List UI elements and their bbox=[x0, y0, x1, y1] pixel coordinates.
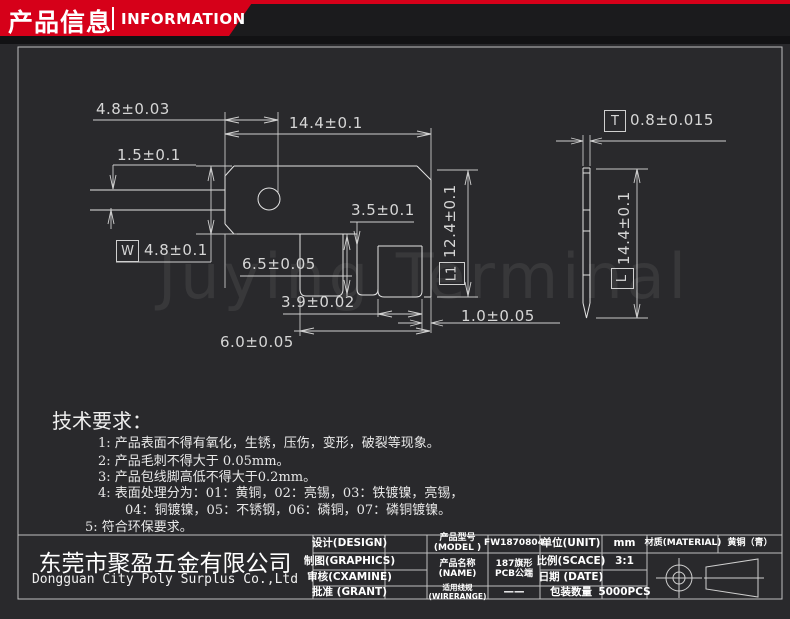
product-spec-sheet: 产品信息 INFORMATION Juying Terminal bbox=[0, 0, 790, 619]
requirement-line: 1: 产品表面不得有氧化，生锈，压伤，变形，破裂等现象。 bbox=[98, 432, 440, 451]
titleblock-unit-value: mm bbox=[602, 536, 647, 552]
titleblock-grant-label: 批准 (GRANT) bbox=[314, 587, 385, 598]
dim-thickness: 0.8±0.015 bbox=[630, 111, 714, 129]
titleblock-scale-label: 比例(SCACE) bbox=[540, 554, 602, 569]
requirement-line: 5: 符合环保要求。 bbox=[85, 516, 193, 535]
titleblock-date-label: 日期 (DATE) bbox=[540, 571, 602, 585]
titleblock-scale-value: 3:1 bbox=[602, 554, 647, 569]
titleblock-material-label: 材质(MATERIAL) bbox=[648, 536, 718, 552]
dim-edge-gap: 1.0±0.05 bbox=[461, 307, 535, 325]
titleblock-examine-label: 审核(CXAMINE) bbox=[314, 571, 385, 585]
dim-t-box: T bbox=[604, 110, 626, 132]
dim-body-height: 12.4±0.1 bbox=[441, 166, 459, 258]
titleblock-date-value bbox=[602, 571, 647, 585]
dim-top-offset: 4.8±0.03 bbox=[96, 100, 170, 118]
name-label-en: (NAME) bbox=[439, 570, 477, 580]
titleblock-wire-value: —— bbox=[488, 586, 540, 599]
dim-w-box: W bbox=[116, 240, 139, 262]
model-label-en: (MODEL ) bbox=[434, 544, 481, 554]
titleblock-qty-value: 5000PCS bbox=[602, 587, 647, 598]
dim-blade-thickness: 1.5±0.1 bbox=[117, 146, 181, 164]
dim-total-width: 14.4±0.1 bbox=[289, 114, 363, 132]
titleblock-wire-label: 适用线规 (WIRERANGE) bbox=[427, 586, 488, 599]
name-value-line2: PCB公端 bbox=[495, 570, 533, 580]
dim-step: 3.5±0.1 bbox=[351, 201, 415, 219]
dim-w-value: 4.8±0.1 bbox=[144, 241, 208, 259]
dim-l1-box: L1 bbox=[439, 262, 465, 285]
dim-leg-length: 6.5±0.05 bbox=[242, 255, 316, 273]
dim-leg-span: 6.0±0.05 bbox=[220, 333, 294, 351]
dim-l-box: L bbox=[611, 268, 634, 289]
header-divider bbox=[112, 7, 114, 30]
titleblock-model-label: 产品型号 (MODEL ) bbox=[427, 536, 488, 552]
dim-l-label: L bbox=[615, 275, 630, 282]
header-shadow-band bbox=[0, 36, 790, 44]
page-title-cn: 产品信息 bbox=[8, 3, 112, 39]
wire-label-en: (WIRERANGE) bbox=[429, 593, 487, 601]
page-title-en: INFORMATION bbox=[121, 10, 246, 28]
titleblock-name-label: 产品名称 (NAME) bbox=[427, 555, 488, 585]
company-name-en: Dongguan City Poly Surplus Co.,Ltd bbox=[17, 572, 313, 587]
dim-leg-width: 3.9±0.02 bbox=[281, 293, 355, 311]
titleblock-design-label: 设计(DESIGN) bbox=[314, 536, 385, 552]
titleblock-model-value: FW1870804 bbox=[488, 536, 540, 552]
titleblock-material-value: 黄铜（青） bbox=[718, 536, 782, 552]
titleblock-graphics-label: 制图(GRAPHICS) bbox=[314, 554, 385, 569]
dim-w-label: W bbox=[121, 244, 134, 259]
titleblock-unit-label: 单位(UNIT) bbox=[540, 536, 602, 552]
titleblock-name-value: 187旗形 PCB公端 bbox=[488, 554, 540, 585]
projection-symbol bbox=[656, 558, 764, 598]
dim-total-length: 14.4±0.1 bbox=[615, 173, 633, 265]
titleblock-qty-label: 包装数量 bbox=[540, 587, 602, 598]
dim-l1-label: L1 bbox=[444, 266, 459, 282]
dim-t-label: T bbox=[611, 114, 619, 129]
requirements-title: 技术要求： bbox=[52, 405, 152, 434]
